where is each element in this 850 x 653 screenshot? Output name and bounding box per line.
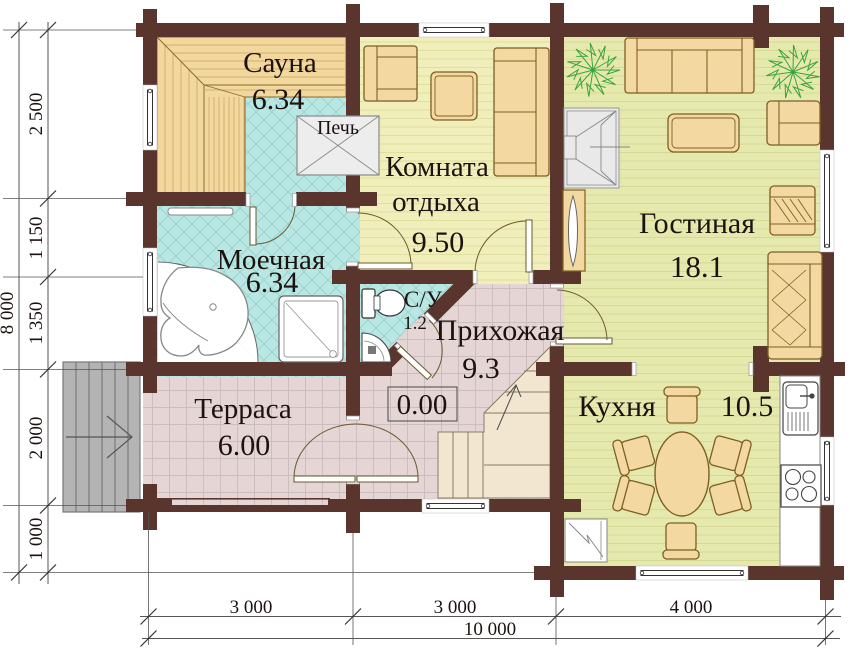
svg-text:Прихожая: Прихожая <box>436 314 565 347</box>
svg-text:18.1: 18.1 <box>670 249 724 284</box>
svg-text:8 000: 8 000 <box>0 292 18 335</box>
svg-text:3 000: 3 000 <box>434 597 477 618</box>
svg-text:Печь: Печь <box>317 117 359 139</box>
svg-text:9.50: 9.50 <box>412 226 465 259</box>
svg-text:10.5: 10.5 <box>721 390 774 423</box>
svg-text:10 000: 10 000 <box>464 619 516 640</box>
svg-text:1.2: 1.2 <box>403 313 427 334</box>
svg-text:отдыха: отдыха <box>392 186 480 218</box>
svg-text:2 500: 2 500 <box>26 93 47 136</box>
svg-text:2 000: 2 000 <box>26 417 47 460</box>
svg-text:6.34: 6.34 <box>246 266 299 299</box>
svg-text:Терраса: Терраса <box>194 393 292 425</box>
svg-text:6.34: 6.34 <box>252 83 305 116</box>
svg-text:4 000: 4 000 <box>670 597 713 618</box>
svg-text:0.00: 0.00 <box>397 389 448 421</box>
svg-text:1 000: 1 000 <box>26 518 47 561</box>
svg-text:Сауна: Сауна <box>243 47 317 79</box>
svg-text:1 350: 1 350 <box>26 302 47 345</box>
svg-text:1 150: 1 150 <box>26 217 47 260</box>
svg-text:6.00: 6.00 <box>218 429 271 462</box>
svg-text:Комната: Комната <box>385 151 489 183</box>
svg-text:С/У: С/У <box>404 287 443 312</box>
svg-text:3 000: 3 000 <box>230 597 273 618</box>
svg-text:Гостиная: Гостиная <box>639 207 755 240</box>
svg-text:9.3: 9.3 <box>462 352 500 385</box>
svg-text:Кухня: Кухня <box>578 390 656 423</box>
